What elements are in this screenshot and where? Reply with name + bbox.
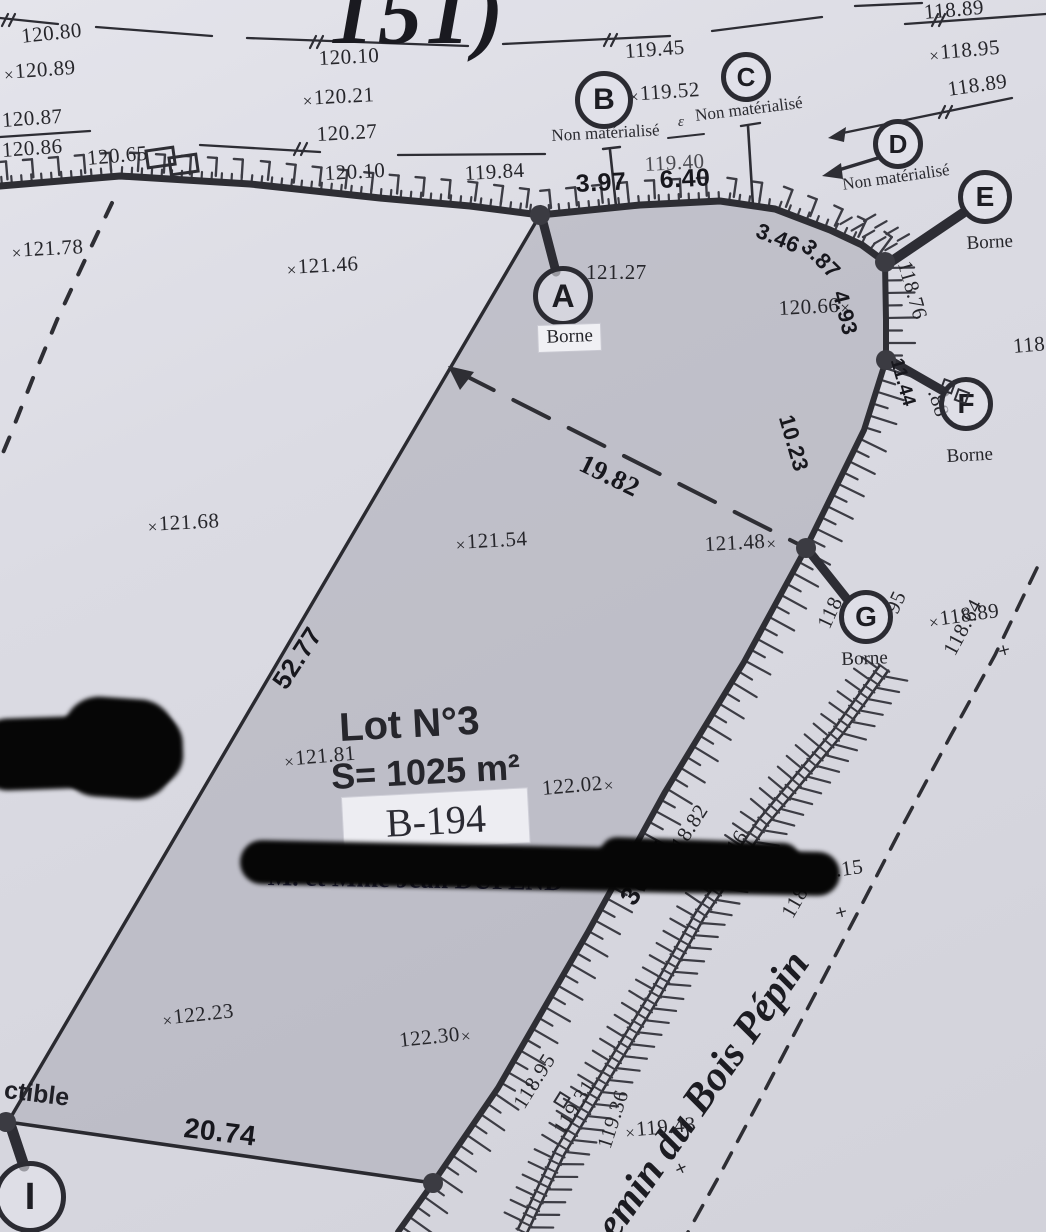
elevation-value: 119.52: [639, 77, 701, 105]
point-letter: I: [25, 1176, 36, 1219]
owner-fragment-left: M: [26, 730, 46, 755]
elevation-value: 120.21: [313, 82, 375, 109]
elevation-value: 121.48: [704, 529, 766, 556]
elevation-value: 120.65: [86, 141, 149, 170]
elevation-cross-marker: ×: [602, 776, 616, 796]
elevation-label: ×121.68: [146, 508, 220, 538]
elevation-value: 120.80: [20, 18, 83, 48]
distance-label: 36.05: [614, 835, 678, 911]
elevation-label: 119.84: [464, 158, 525, 186]
elevation-value: 118: [1012, 331, 1046, 358]
distance-label: 10.23: [773, 412, 814, 474]
elevation-label: 120.87: [1, 104, 63, 133]
point-letter: D: [889, 129, 908, 160]
non-materialise-label: Non matérialisé: [551, 120, 660, 146]
elevation-value: 122.23: [172, 998, 235, 1028]
survey-point-g: G: [839, 590, 893, 644]
elevation-value: 118.89: [946, 69, 1009, 101]
elevation-value: 120.86: [1, 134, 63, 162]
point-letter: E: [976, 181, 995, 213]
elevation-value: 118.99: [776, 858, 827, 922]
elevation-label: ×121.78: [10, 234, 84, 264]
elevation-label: 122.02×: [541, 770, 616, 802]
elevation-value: 122.30: [398, 1022, 461, 1052]
borne-label: Borne: [538, 324, 601, 352]
survey-point-e: E: [958, 170, 1012, 224]
survey-point-a: A: [533, 266, 593, 326]
cross-marker: ×: [993, 641, 1017, 661]
elevation-label: 119.31: [548, 1075, 601, 1139]
elevation-value: 121.46: [297, 251, 359, 278]
elevation-label: 120.80: [20, 18, 83, 49]
survey-point-b: B: [575, 71, 633, 129]
elevation-label: 118.89: [923, 0, 985, 25]
elevation-value: 122.02: [541, 771, 604, 800]
elevation-cross-marker: ×: [285, 260, 298, 280]
constructible-fragment-label: ctible: [2, 1076, 70, 1113]
elevation-label: 119.16: [700, 826, 754, 890]
survey-point-d: D: [873, 119, 923, 169]
elevation-cross-marker: ×: [146, 517, 159, 537]
elevation-value: 119.84: [464, 158, 525, 185]
elevation-label: 122.30×: [398, 1020, 473, 1053]
elevation-value: 120.10: [324, 158, 386, 185]
elevation-value: 119.45: [624, 35, 686, 63]
borne-label: Borne: [966, 231, 1014, 255]
elevation-value: 118.89: [923, 0, 985, 24]
lot-number-label: Lot N°3: [338, 699, 481, 751]
distance-label: 11.44: [885, 356, 920, 409]
borne-label: Borne: [946, 444, 994, 468]
elevation-cross-marker: ×: [765, 534, 778, 554]
point-letter: G: [855, 601, 877, 633]
elevation-label: 118.99: [776, 858, 828, 922]
distance-label: 4.93: [827, 288, 863, 338]
elevation-label: 120.27: [316, 119, 378, 147]
map-labels-layer: 151) Lot N°3 S= 1025 m² B-194 M. et Mme …: [0, 0, 1046, 1232]
elevation-cross-marker: ×: [459, 1026, 473, 1046]
elevation-value: 121.78: [22, 234, 84, 261]
elevation-label: 121.27: [586, 260, 647, 285]
distance-label: 3.87: [796, 234, 846, 284]
elevation-label: 120.10: [324, 158, 386, 186]
elevation-value: 121.68: [158, 508, 220, 535]
distance-label: 6.40: [659, 163, 711, 195]
survey-plan-scan: 151) Lot N°3 S= 1025 m² B-194 M. et Mme …: [0, 0, 1046, 1232]
elevation-label: 119.45: [624, 35, 686, 64]
point-letter: A: [551, 278, 574, 315]
elevation-label: ×120.21: [301, 82, 375, 112]
elevation-label: 118.95: [508, 1049, 561, 1113]
point-letter: C: [737, 62, 756, 93]
elevation-value: 120.27: [316, 119, 378, 146]
elevation-value: 121.27: [586, 260, 647, 284]
elevation-label: 120.10: [318, 43, 380, 71]
owner-name-text: M. et Mme Jean DUPEND: [267, 862, 563, 897]
distance-label: 3.97: [575, 167, 627, 199]
elevation-label: ×119.52: [627, 77, 701, 108]
elevation-value: 119.43: [635, 1112, 697, 1141]
elevation-label: ×121.46: [285, 251, 359, 281]
cross-marker: ×: [830, 903, 854, 923]
distance-label: 52.77: [266, 621, 329, 695]
distance-label: 20.74: [182, 1112, 258, 1153]
elevation-cross-marker: ×: [10, 243, 23, 263]
elevation-value: 119.31: [548, 1075, 600, 1139]
elevation-label: 121.48×: [704, 528, 778, 558]
elevation-cross-marker: ×: [454, 535, 467, 555]
elevation-value: 121.81: [294, 741, 357, 770]
elevation-label: 120.65: [86, 141, 149, 171]
elevation-label: 118.76: [892, 258, 933, 323]
parcel-id-box: B-194: [342, 788, 530, 852]
distance-label: 19.82: [574, 448, 644, 504]
elevation-label: ×118.95: [927, 35, 1001, 67]
survey-point-c: C: [721, 52, 771, 102]
elevation-value: 118.95: [508, 1049, 560, 1113]
elevation-value: 120.10: [318, 43, 380, 70]
elevation-cross-marker: ×: [301, 91, 314, 111]
borne-label: Borne: [841, 647, 888, 671]
elevation-value: 118.76: [893, 258, 933, 322]
elevation-label: ×121.54: [454, 526, 528, 556]
elevation-label: 118: [1012, 331, 1046, 359]
elevation-label: 118.89: [946, 69, 1009, 102]
elevation-label: ×120.89: [2, 55, 76, 86]
elevation-value: 119.16: [700, 826, 753, 889]
point-letter: B: [593, 83, 615, 117]
elevation-value: 121.54: [466, 526, 528, 553]
elevation-value: 120.87: [1, 104, 63, 132]
epsilon-note: ε: [678, 114, 684, 131]
elevation-label: ×122.23: [160, 998, 235, 1031]
elevation-value: 118.95: [939, 35, 1001, 64]
survey-point-i: I: [0, 1161, 66, 1232]
elevation-value: 120.89: [14, 55, 76, 83]
elevation-label: 120.86: [1, 134, 63, 163]
